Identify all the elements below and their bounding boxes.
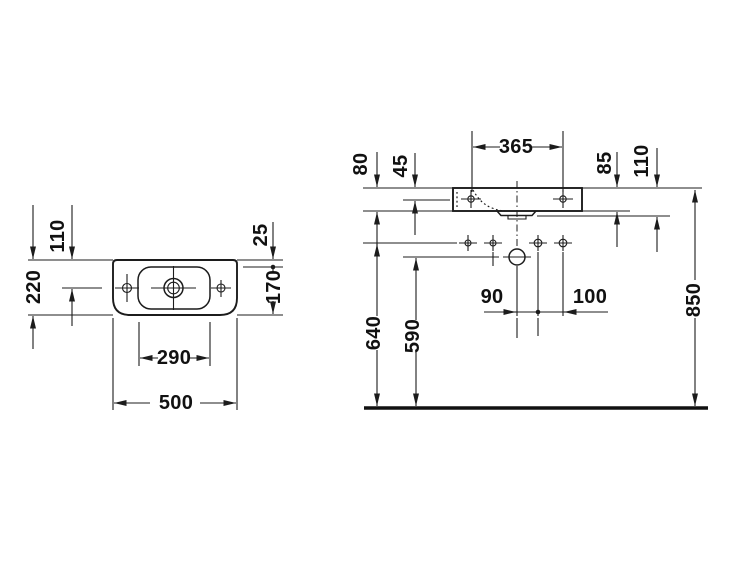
dim-back-ledge-label: 25 [250, 224, 272, 247]
top-view-extension-lines [28, 260, 283, 410]
washbasin-drawing-svg: 110 220 25 170 290 500 [0, 0, 750, 563]
front-view: 365 80 45 85 110 90 100 640 590 850 [350, 131, 708, 408]
drain-symbol [151, 266, 196, 310]
dim-right-outlet-label: 110 [631, 144, 653, 177]
dim-supply-height-label: 640 [363, 316, 385, 350]
front-view-dimension-arrows [377, 147, 695, 406]
dim-overall-width-label: 500 [159, 392, 193, 414]
fixing-hole-left [461, 190, 481, 208]
top-view-dimension-arrows [33, 205, 275, 403]
tap-hole-symbol [115, 274, 139, 302]
dim-bowl-width-label: 290 [157, 347, 191, 369]
dim-outlet-left-spacing-label: 90 [481, 286, 504, 308]
fixing-hole-right [553, 190, 573, 208]
dim-outlet-height-label: 590 [402, 319, 424, 353]
dim-rim-height-label: 850 [683, 283, 705, 317]
dim-drain-from-back-label: 110 [47, 219, 69, 252]
top-view: 110 220 25 170 290 500 [23, 205, 285, 414]
waste-pipe-symbol [503, 249, 531, 265]
dim-right-rim-label: 85 [594, 152, 616, 175]
dim-fixing-distance-label: 365 [499, 136, 533, 158]
dim-left-fixing-label: 45 [390, 155, 412, 178]
hidden-bowl-contour [473, 190, 505, 211]
dim-bowl-depth-label: 170 [263, 270, 285, 304]
dim-left-rim-label: 80 [350, 153, 372, 176]
dim-overall-depth-label: 220 [23, 270, 45, 304]
right-hole-symbol [211, 280, 231, 297]
dim-outlet-right-spacing-label: 100 [573, 286, 607, 308]
technical-drawing-page: 110 220 25 170 290 500 [0, 0, 750, 563]
